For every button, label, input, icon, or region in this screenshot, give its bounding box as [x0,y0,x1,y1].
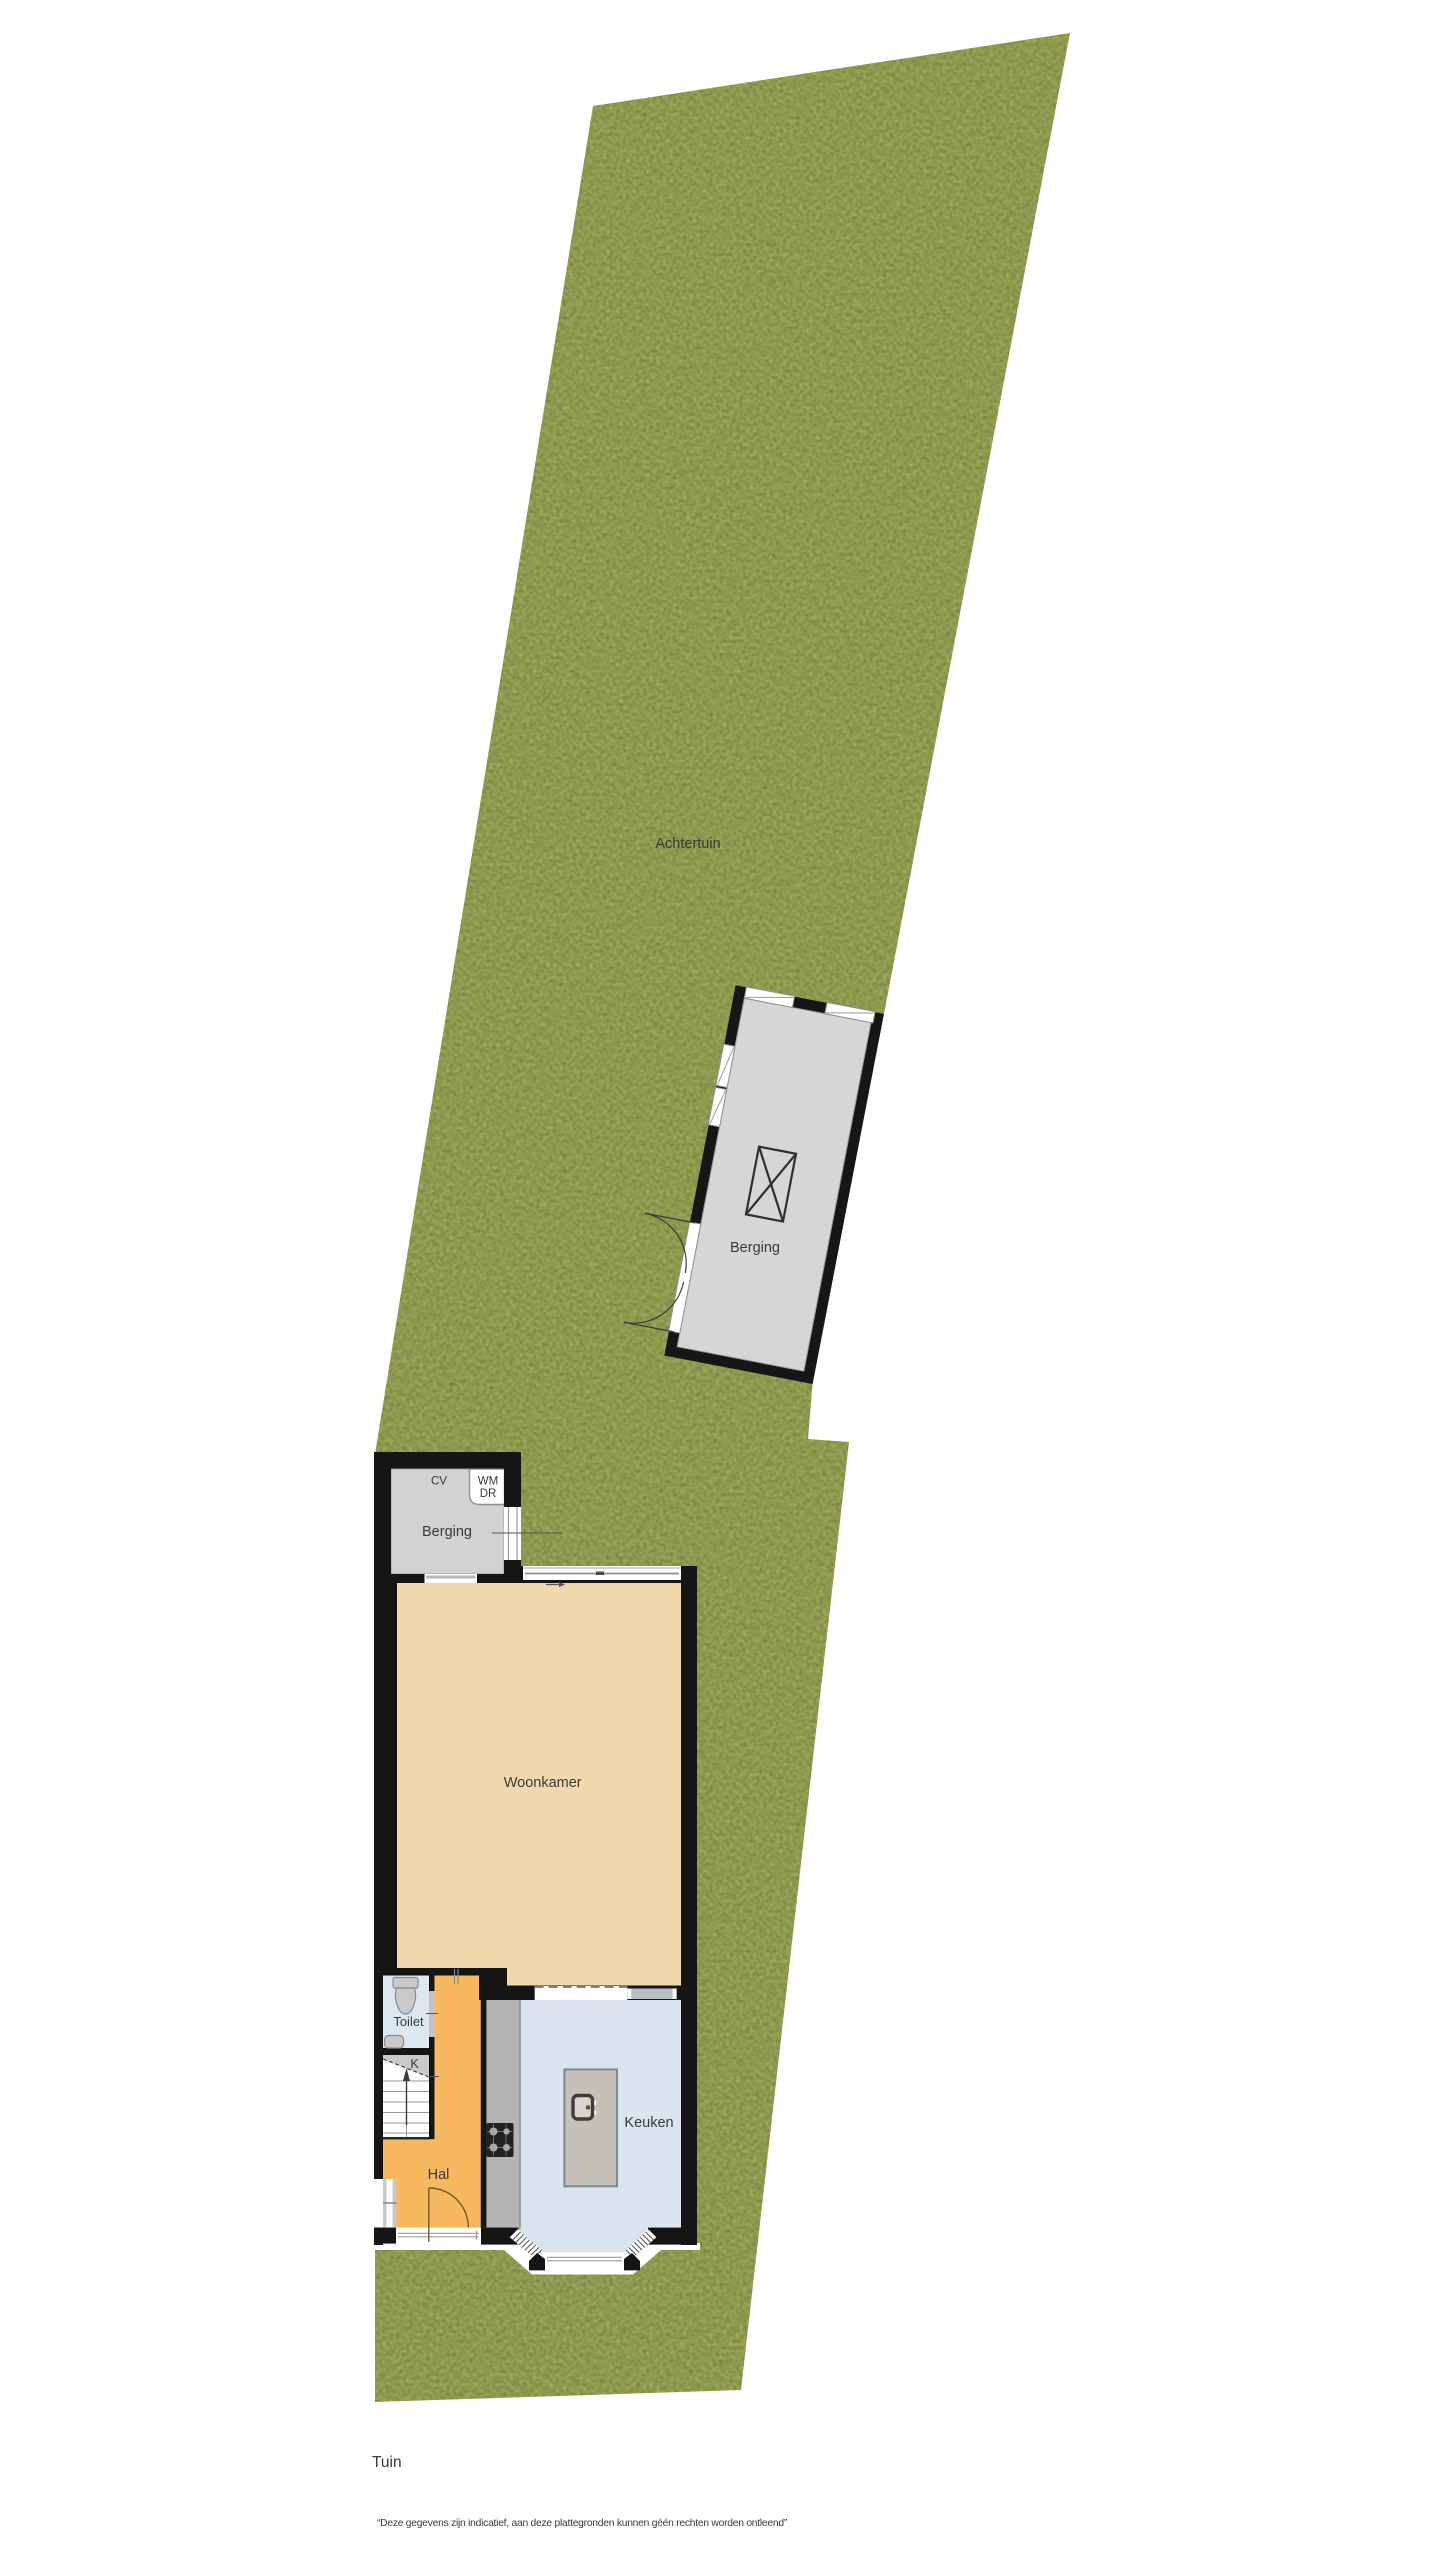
svg-text:WM: WM [478,1476,498,1488]
svg-text:Keuken: Keuken [624,2115,673,2131]
svg-text:Hal: Hal [428,2167,450,2183]
svg-text:Tuin: Tuin [372,2454,402,2471]
svg-text:K: K [410,2057,419,2071]
svg-text:DR: DR [480,1488,497,1500]
svg-text:Berging: Berging [422,1524,472,1540]
svg-text:Woonkamer: Woonkamer [504,1775,582,1791]
svg-text:CV: CV [431,1476,447,1488]
svg-text:Berging: Berging [730,1240,780,1256]
svg-text:“Deze gegevens zijn indicatief: “Deze gegevens zijn indicatief, aan deze… [377,2518,788,2529]
svg-text:Achtertuin: Achtertuin [655,836,720,852]
svg-text:Toilet: Toilet [393,2014,424,2029]
